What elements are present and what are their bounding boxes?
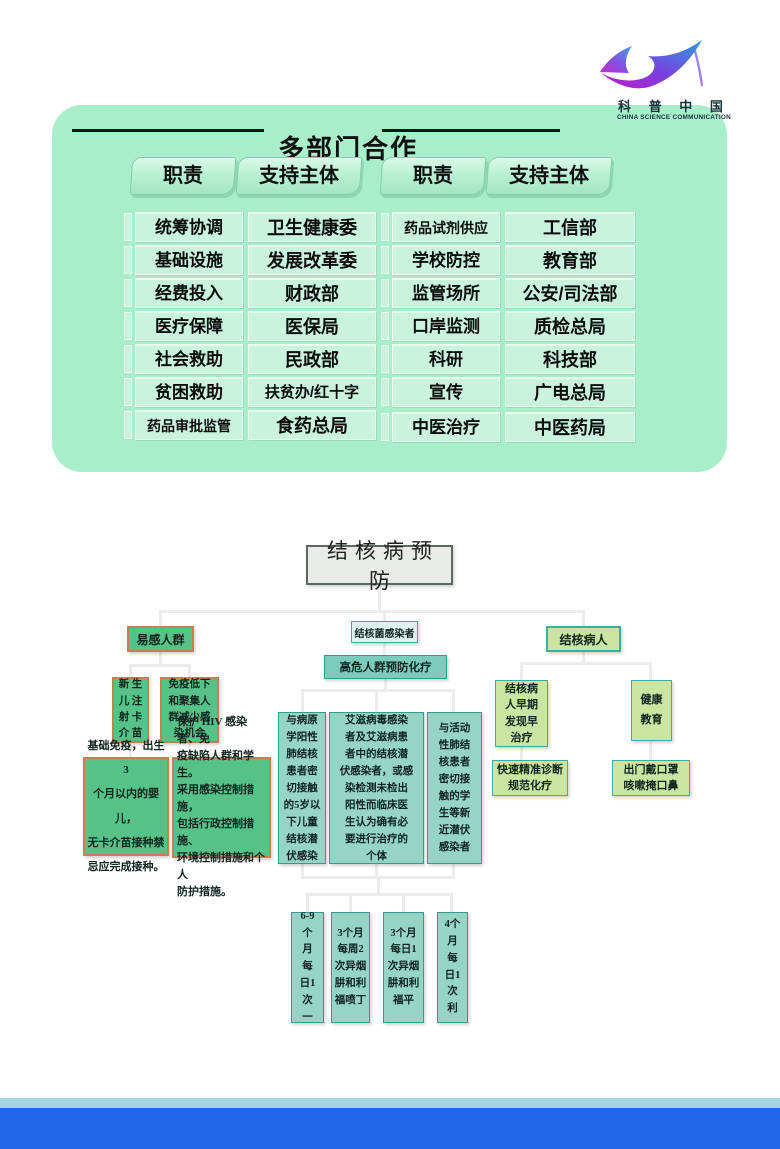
duty-cell: 药品试剂供应 [392, 212, 500, 242]
flow-node-regimen-3m-daily: 3个月 每日1 次异烟 肼和利 福平 [383, 912, 424, 1023]
supporter-cell: 工信部 [505, 212, 635, 242]
logo-en-label: CHINA SCIENCE COMMUNICATION [617, 114, 727, 121]
supporter-cell: 民政部 [248, 344, 376, 374]
logo-cn-label: 科 普 中 国 [618, 96, 718, 115]
connector-line [520, 662, 652, 665]
flow-node-regimen-3m-weekly: 3个月 每周2 次异烟 肼和利 福喷丁 [331, 912, 370, 1023]
flow-node-group-hiv-latent: 艾滋病毒感染 者及艾滋病患 者中的结核潜 伏感染者，或感 染检测未检出 阳性而临… [329, 712, 424, 864]
china-science-communication-swoosh-icon [592, 36, 710, 104]
flow-node-basic-immunization-detail: 基础免疫，出生3 个月以内的婴儿， 无卡介苗接种禁 忌应完成接种。 [83, 757, 169, 856]
connector-line [160, 610, 585, 613]
connector-line [349, 893, 352, 912]
duty-cell: 中医治疗 [392, 412, 500, 442]
supporter-cell: 卫生健康委 [248, 212, 376, 242]
supporter-cell: 科技部 [505, 344, 635, 374]
column-header-duty-left: 职责 [130, 157, 237, 195]
connector-line [159, 652, 162, 664]
title-rule-left [72, 129, 264, 132]
connector-line [301, 864, 304, 876]
connector-line [377, 876, 380, 893]
flow-node-tb-infected: 结核菌感染者 [351, 621, 418, 643]
footer-accent-strip [0, 1098, 780, 1108]
duty-cell: 科研 [392, 344, 500, 374]
connector-line [520, 662, 523, 680]
connector-line [375, 864, 378, 876]
supporter-cell: 公安/司法部 [505, 278, 635, 308]
flow-node-group-children-under5: 与病原 学阳性 肺结核 患者密 切接触 的5岁以 下儿童 结核潜 伏感染 [278, 712, 326, 864]
supporter-cell: 食药总局 [248, 410, 376, 440]
supporter-cell: 扶贫办/红十字 [248, 377, 376, 407]
flow-node-rapid-diagnosis-detail: 快速精准诊断 规范化疗 [492, 760, 568, 796]
column-header-duty-right: 职责 [380, 157, 487, 195]
footer-bar [0, 1108, 780, 1149]
connector-line [582, 610, 585, 626]
connector-line [383, 610, 386, 621]
connector-line [129, 664, 132, 677]
connector-line [450, 893, 453, 912]
flow-node-regimen-6-9-months: 6-9 个 月 每 日1 次 一 [291, 912, 324, 1023]
duty-cell: 医疗保障 [135, 311, 243, 341]
supporter-cell: 教育部 [505, 245, 635, 275]
flow-root-tb-prevention: 结核病预防 [306, 545, 453, 585]
duty-cell: 宣传 [392, 377, 500, 407]
supporter-cell: 财政部 [248, 278, 376, 308]
column-header-supporter-right: 支持主体 [486, 157, 613, 195]
supporter-cell: 中医药局 [505, 412, 635, 442]
poster: 多部门合作 职责 支持主体 职责 支持主体 统筹协调 卫生健康委 基础设施 发展… [0, 0, 780, 1149]
connector-line [384, 679, 387, 689]
supporter-cell: 医保局 [248, 311, 376, 341]
connector-line [452, 864, 455, 876]
duty-cell: 经费投入 [135, 278, 243, 308]
duty-cell: 贫困救助 [135, 377, 243, 407]
duty-cell: 药品审批监管 [135, 410, 243, 440]
flow-node-early-detection: 结核病 人早期 发现早 治疗 [495, 680, 548, 747]
connector-line [301, 689, 304, 712]
flow-node-hiv-protection-detail: 保护 HIV 感染者、免 疫缺陷人群和学生。 采用感染控制措施， 包括行政控制措… [172, 757, 271, 858]
flow-node-health-education: 健康 教育 [631, 680, 672, 741]
connector-line [383, 643, 386, 655]
column-header-supporter-left: 支持主体 [236, 157, 363, 195]
duty-cell: 社会救助 [135, 344, 243, 374]
connector-line [129, 664, 191, 667]
duty-cell: 监管场所 [392, 278, 500, 308]
flow-node-group-student-contacts: 与活动 性肺结 核患者 密切接 触的学 生等新 近潜伏 感染者 [427, 712, 482, 864]
supporter-cell: 发展改革委 [248, 245, 376, 275]
connector-line [306, 893, 453, 896]
duty-cell: 口岸监测 [392, 311, 500, 341]
connector-line [582, 652, 585, 662]
flow-node-high-risk-chemoprevention: 高危人群预防化疗 [324, 655, 447, 679]
flow-node-susceptible-population: 易感人群 [127, 626, 194, 652]
duty-cell: 学校防控 [392, 245, 500, 275]
connector-line [188, 664, 191, 677]
connector-line [649, 741, 652, 760]
connector-line [452, 689, 455, 712]
supporter-cell: 质检总局 [505, 311, 635, 341]
flow-node-tb-patients: 结核病人 [546, 626, 621, 652]
duty-cell: 基础设施 [135, 245, 243, 275]
connector-line [402, 893, 405, 912]
connector-line [649, 662, 652, 680]
connector-line [159, 610, 162, 626]
flow-node-regimen-4m-daily: 4个 月 每 日1 次 利 [437, 912, 468, 1023]
connector-line [375, 689, 378, 712]
flow-node-mask-etiquette-detail: 出门戴口罩 咳嗽掩口鼻 [612, 760, 690, 796]
duty-cell: 统筹协调 [135, 212, 243, 242]
connector-line [301, 689, 455, 692]
connector-line [520, 747, 523, 760]
supporter-cell: 广电总局 [505, 377, 635, 407]
